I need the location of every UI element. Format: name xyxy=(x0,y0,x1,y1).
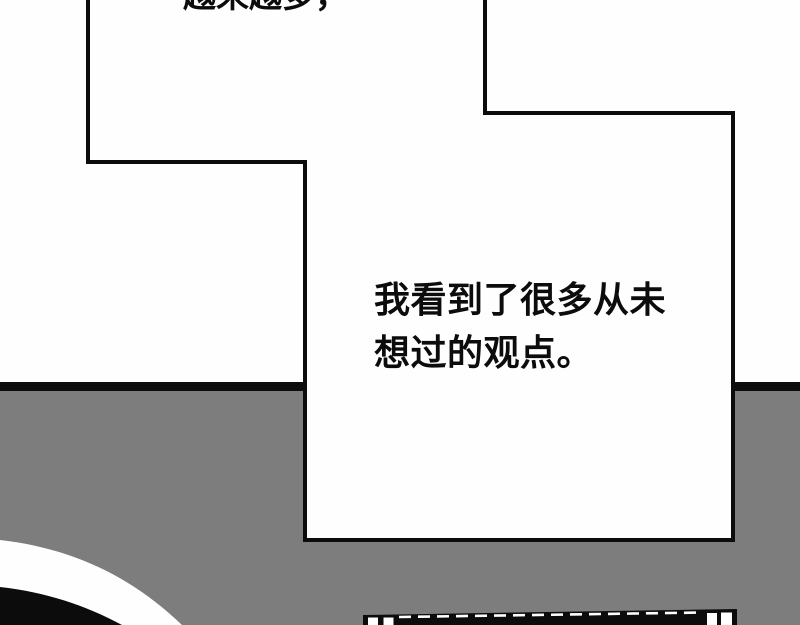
shelf-pane-shape xyxy=(384,618,394,625)
narration-text: 我看到了很多从未 想过的观点。 xyxy=(374,274,666,380)
narration-line: 想过的观点。 xyxy=(374,327,666,380)
shelf-pane-shape xyxy=(721,613,732,625)
top-caption-text: 越来越多， xyxy=(183,0,348,12)
bottom-shelf-shape xyxy=(363,609,737,625)
comic-page: 越来越多， 我看到了很多从未 想过的观点。 xyxy=(0,0,800,625)
shelf-pane-shape xyxy=(707,613,717,625)
shelf-pane-shape xyxy=(368,618,378,625)
narration-line: 我看到了很多从未 xyxy=(374,274,666,327)
